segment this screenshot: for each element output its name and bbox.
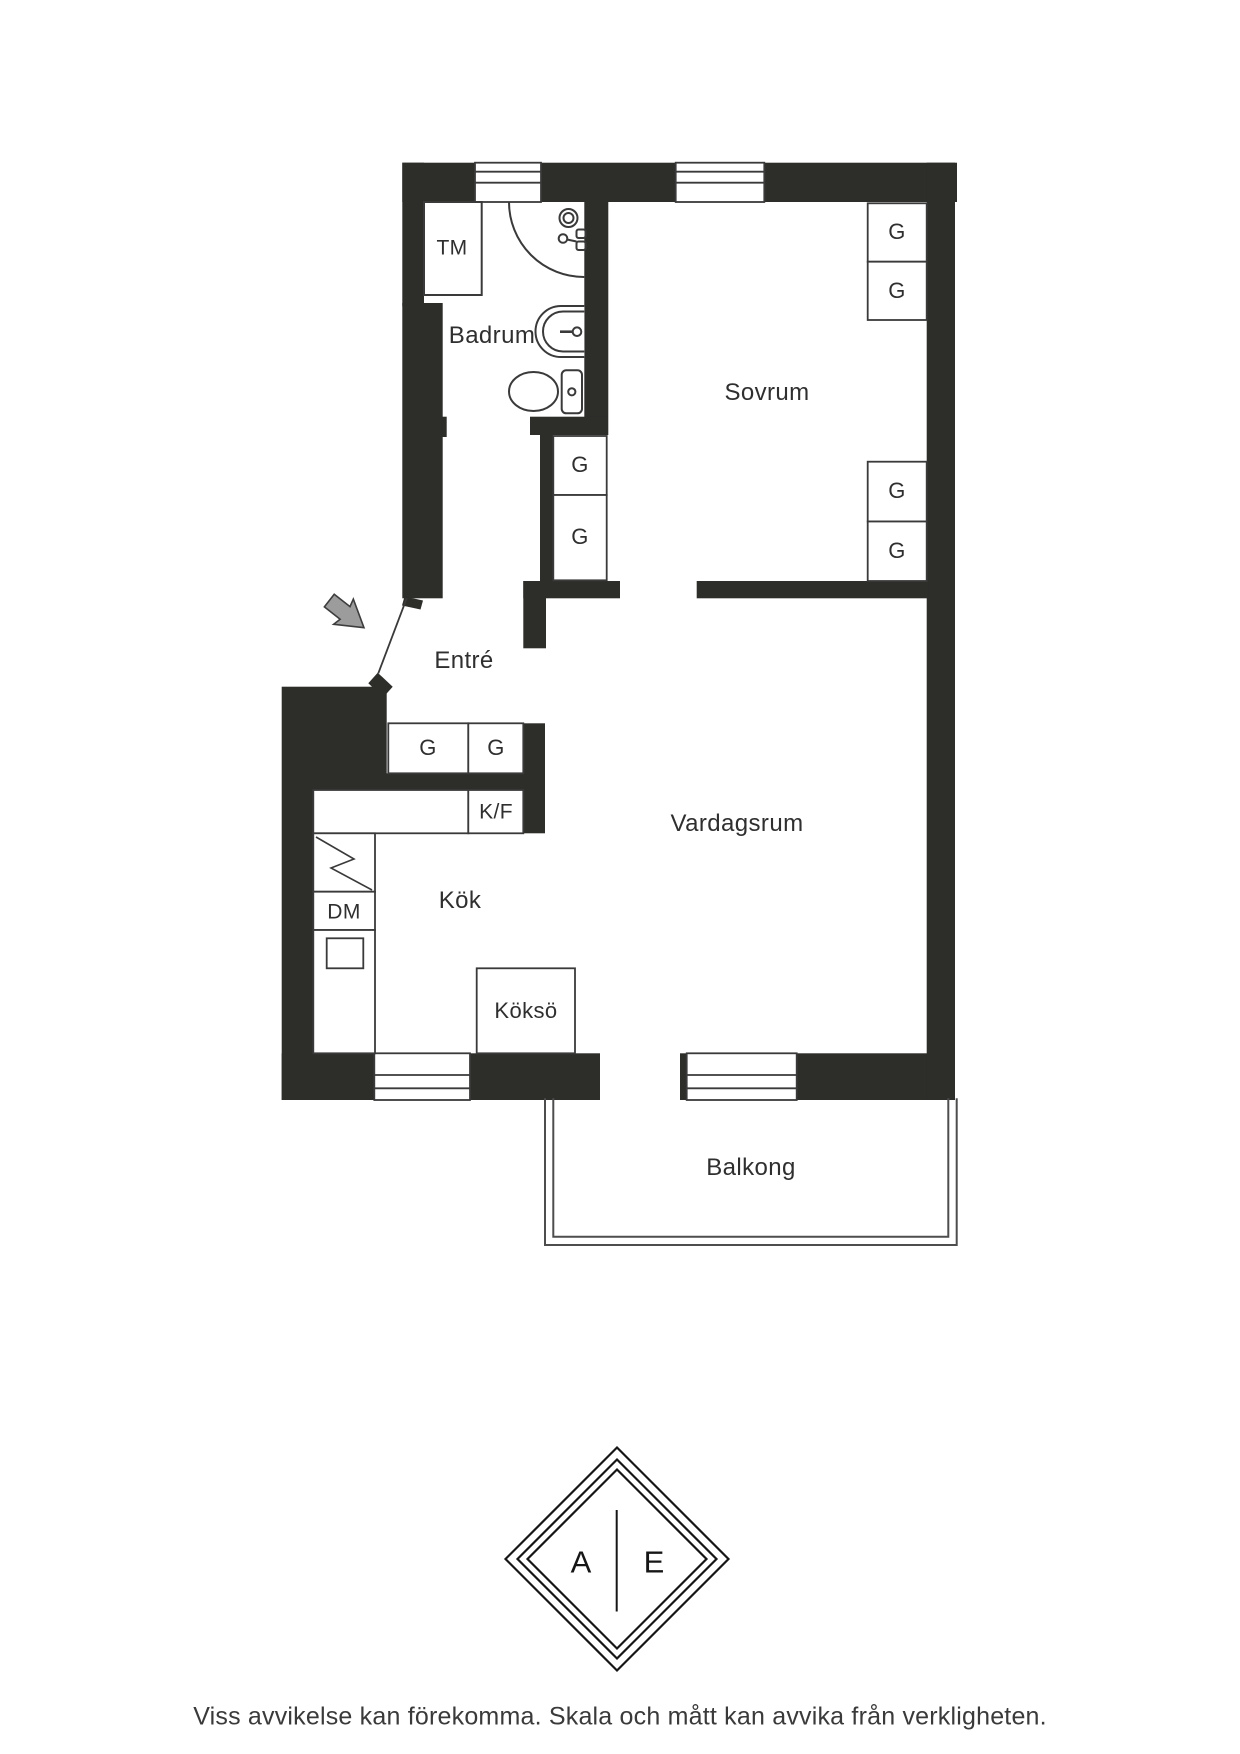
wall-left-mid	[402, 303, 442, 598]
toilet-tank	[562, 370, 582, 413]
disclaimer-text: Viss avvikelse kan förekomma. Skala och …	[193, 1703, 1047, 1732]
shower-icon	[509, 202, 584, 277]
shower-drain-inner	[564, 213, 574, 223]
shower-drain-icon	[560, 209, 578, 227]
washing-machine-label: TM	[436, 238, 467, 259]
entrance-door	[378, 598, 406, 673]
window-livingroom	[687, 1053, 797, 1100]
toilet-bowl	[509, 372, 558, 411]
bathroom-door-jamb	[442, 417, 447, 437]
wall-left-upper	[402, 163, 424, 307]
shower-faucet-line	[567, 240, 577, 242]
sink-faucet-knob	[573, 327, 582, 336]
wardrobe-label: G	[888, 480, 906, 502]
wall-bottom-1	[282, 1053, 375, 1100]
wardrobe-label: G	[487, 737, 505, 759]
room-label-sovrum: Sovrum	[724, 381, 809, 405]
wall-hall-wardrobe	[540, 435, 553, 581]
shower-valve-bottom	[577, 242, 586, 251]
logo-letter-a: A	[571, 1547, 592, 1578]
floor-plan-drawing	[0, 0, 1240, 1754]
wall-bathroom-bottom	[530, 417, 607, 435]
fridge-freezer-label: K/F	[479, 802, 513, 823]
room-label-entre: Entré	[434, 649, 493, 673]
bathroom-fixtures	[424, 202, 586, 413]
wardrobe-label: G	[888, 280, 906, 302]
wall-right	[927, 163, 955, 1100]
room-label-balkong: Balkong	[706, 1156, 796, 1180]
wall-bottom-2	[470, 1053, 600, 1100]
room-label-vardagsrum: Vardagsrum	[671, 812, 804, 836]
room-label-badrum: Badrum	[449, 324, 535, 348]
wall-kf-post	[523, 723, 545, 833]
window-bedroom	[676, 163, 765, 202]
walls	[282, 163, 957, 1100]
wardrobe-label: G	[888, 540, 906, 562]
wall-bedroom-bottom-right	[697, 581, 929, 598]
wall-bottom-post	[680, 1053, 687, 1100]
logo-diamond	[506, 1448, 729, 1671]
shower-faucet-knob	[559, 234, 568, 243]
wardrobe-label: G	[571, 526, 589, 548]
floor-plan-page: TM Badrum Sovrum Entré Vardagsrum Kök Ba…	[0, 0, 1240, 1754]
kitchen-sink-box	[327, 938, 364, 968]
wardrobe-label: G	[888, 221, 906, 243]
wardrobe-label: G	[571, 454, 589, 476]
logo-letter-e: E	[644, 1547, 665, 1578]
kitchen-counter-top	[313, 790, 468, 833]
entrance-door-leaf	[378, 598, 406, 673]
room-label-kok: Kök	[439, 889, 482, 913]
wall-entre-corner	[523, 581, 546, 648]
kitchen-island-label: Köksö	[494, 1000, 557, 1022]
dishwasher-label: DM	[327, 902, 360, 923]
wall-kitchen-top	[313, 773, 545, 790]
window-bathroom	[475, 163, 541, 202]
shower-valve-top	[577, 230, 586, 239]
wardrobe-label: G	[419, 737, 437, 759]
entrance-arrow-icon	[319, 588, 373, 640]
wall-bathroom-bedroom	[584, 202, 608, 435]
window-kitchen	[374, 1053, 470, 1100]
